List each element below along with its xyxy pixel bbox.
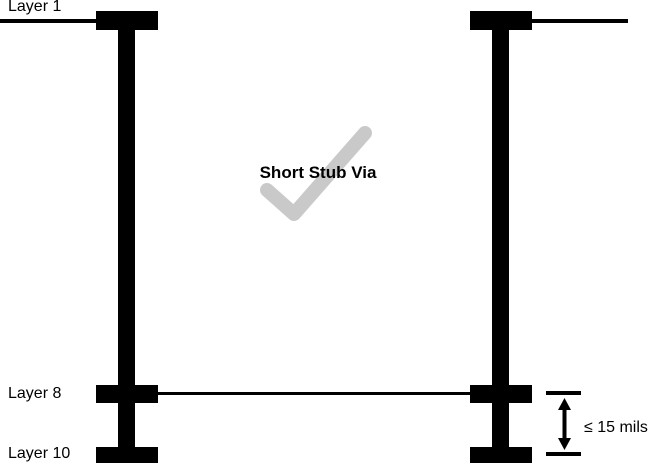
layer-8-trace xyxy=(158,392,470,395)
left-via-pad-layer-1 xyxy=(96,11,158,30)
short-stub-via-diagram: Layer 1 Layer 8 Layer 10 Short Stub Via … xyxy=(0,0,655,467)
dimension-label: ≤ 15 mils xyxy=(584,418,648,437)
right-via-pad-layer-10 xyxy=(470,447,532,463)
layer-8-label: Layer 8 xyxy=(8,385,61,403)
layer-1-trace-right xyxy=(532,19,628,23)
layer-1-label: Layer 1 xyxy=(8,0,61,16)
dimension-tick-bottom xyxy=(546,452,581,456)
layer-1-trace-left xyxy=(0,19,96,23)
left-via-pad-layer-8 xyxy=(96,385,158,403)
left-via-pad-layer-10 xyxy=(96,447,158,463)
double-arrow-head-up xyxy=(558,398,571,410)
layer-10-label: Layer 10 xyxy=(8,445,70,463)
double-arrow-head-down xyxy=(558,438,571,450)
right-via-pad-layer-8 xyxy=(470,385,532,403)
diagram-title: Short Stub Via xyxy=(238,163,398,183)
double-arrow-icon xyxy=(555,398,575,450)
dimension-tick-top xyxy=(546,391,581,395)
right-via-pad-layer-1 xyxy=(470,11,532,30)
